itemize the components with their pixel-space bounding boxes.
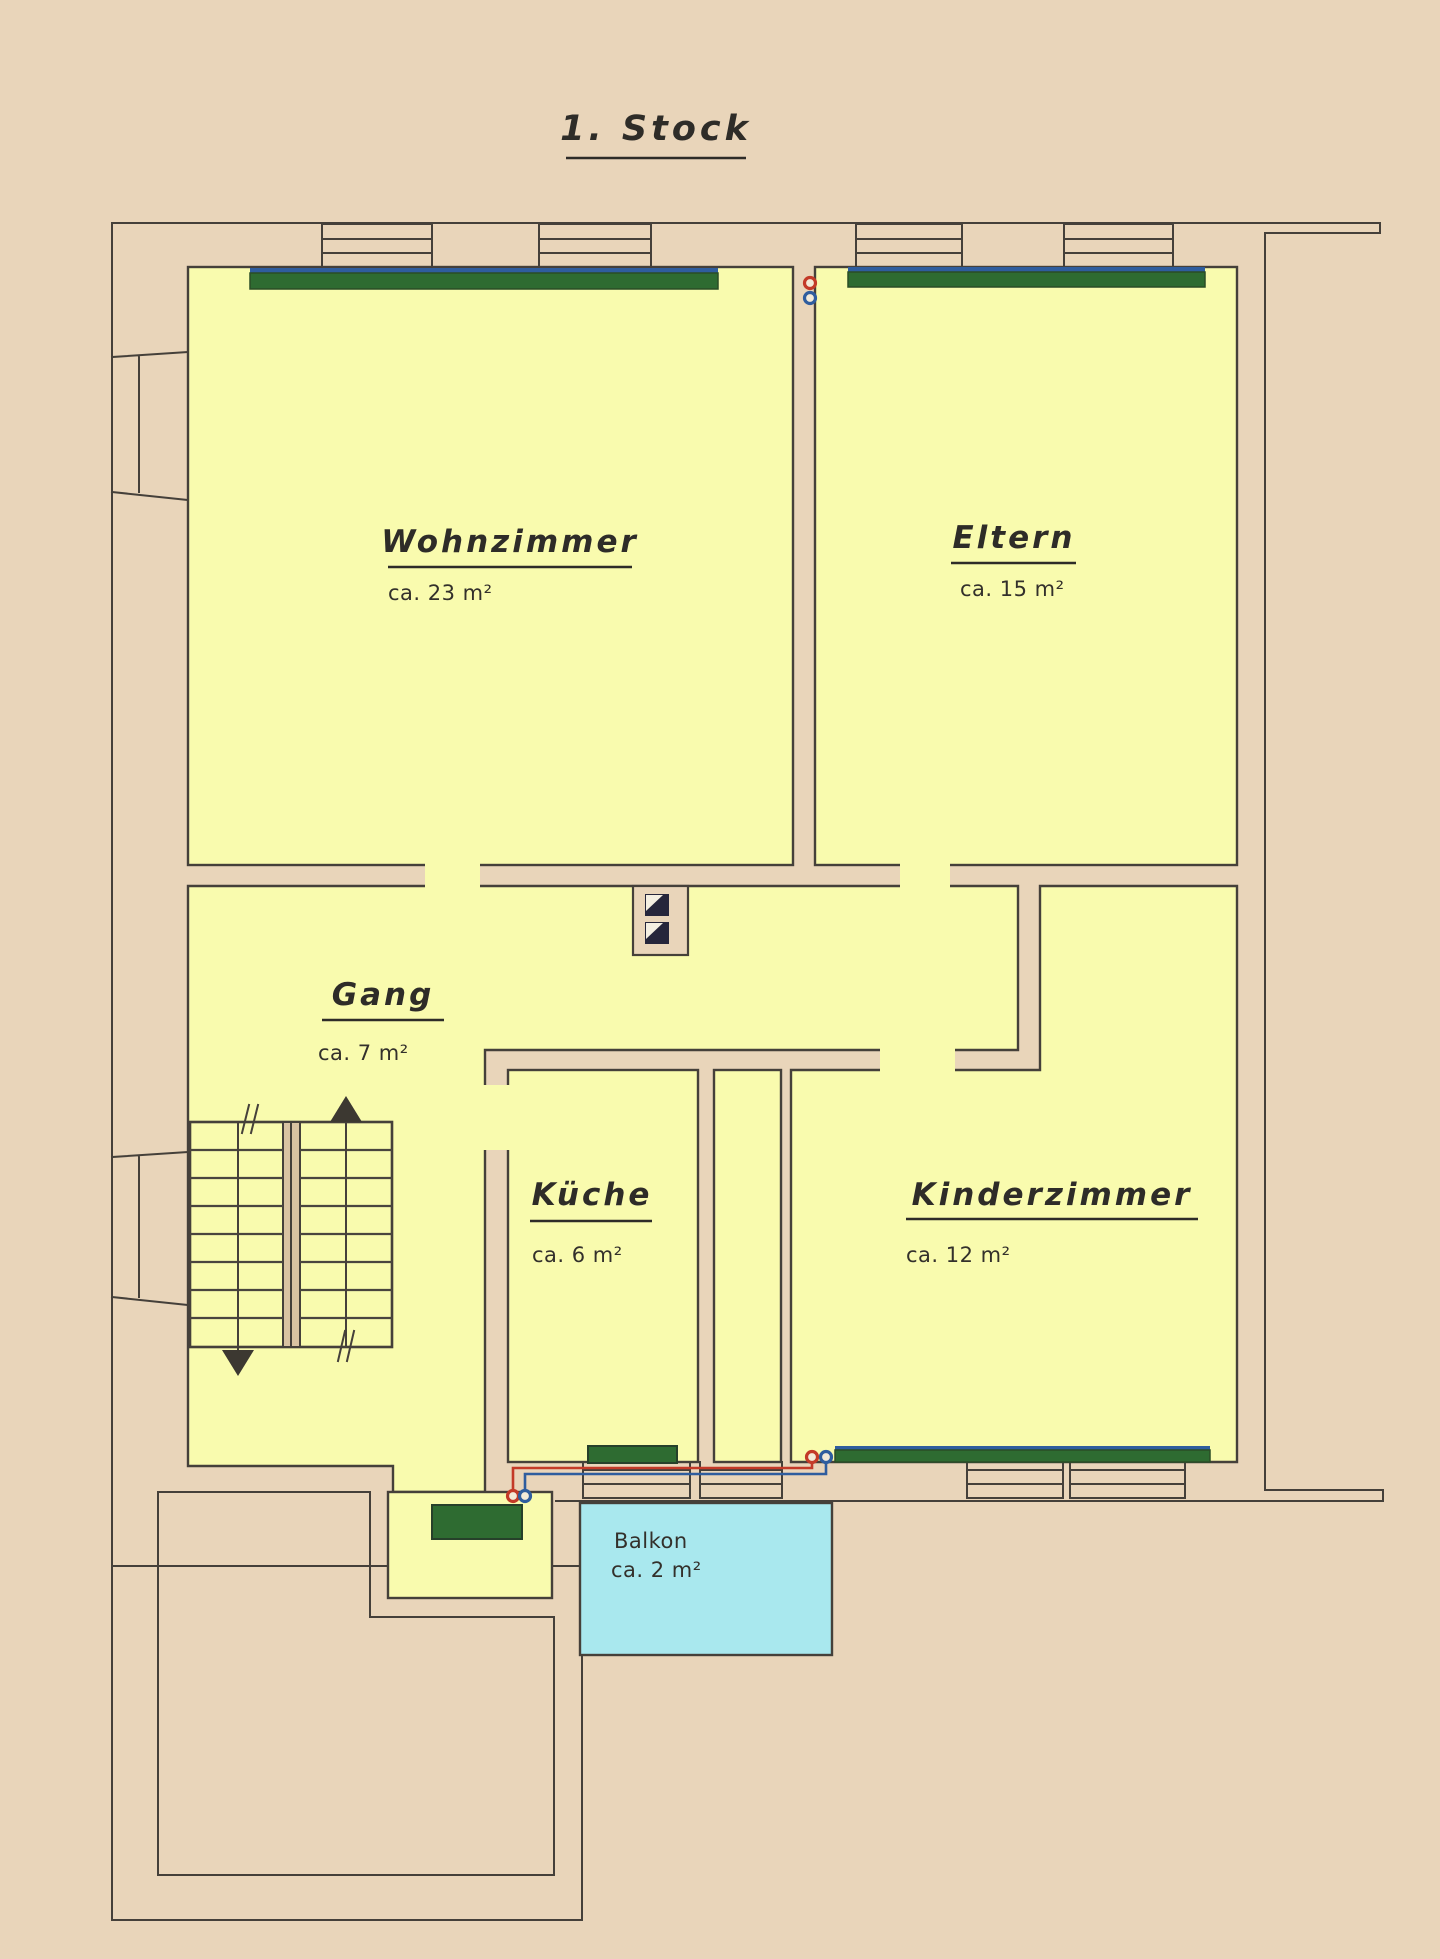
radiator-kueche [588,1446,677,1463]
svg-text:Gang: Gang [332,977,435,1013]
svg-text:ca. 23 m²: ca. 23 m² [388,581,493,605]
svg-text:ca. 15 m²: ca. 15 m² [960,577,1065,601]
svg-text:Küche: Küche [532,1177,653,1213]
svg-text:ca. 12 m²: ca. 12 m² [906,1243,1011,1267]
svg-text:ca. 2 m²: ca. 2 m² [611,1558,702,1582]
pipe-riser-red-eltern [805,278,816,289]
pipe-riser-blue-kinder [821,1452,832,1463]
pipe-riser-red-gang [508,1491,519,1502]
pipe-riser-red-kinder [807,1452,818,1463]
chimney-block [633,886,688,955]
pipe-riser-blue-eltern [805,293,816,304]
svg-text:Balkon: Balkon [614,1529,688,1553]
svg-text:ca. 7 m²: ca. 7 m² [318,1041,409,1065]
svg-text:Eltern: Eltern [952,520,1075,556]
svg-text:Wohnzimmer: Wohnzimmer [381,524,639,560]
pipe-riser-blue-gang [520,1491,531,1502]
room-eltern [815,267,1237,865]
radiator-kinderzimmer [835,1446,1210,1462]
page-title: 1. Stock [560,109,752,149]
radiator-eltern [848,267,1205,287]
radiator-wohnzimmer [250,268,718,289]
svg-text:ca. 6 m²: ca. 6 m² [532,1243,623,1267]
svg-text:Kinderzimmer: Kinderzimmer [912,1177,1193,1213]
balcony-access-strip [714,1070,781,1462]
floor-plan-svg: 1. Stock Wohnzimmer ca. 23 m² Eltern ca.… [0,0,1440,1959]
radiator-annex [432,1505,522,1539]
